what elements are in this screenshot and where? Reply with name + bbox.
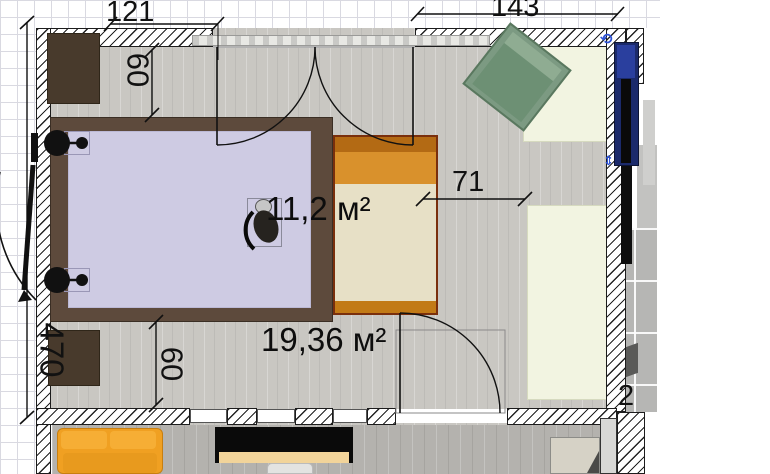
dim-label-121: 121 — [106, 0, 154, 27]
dim-label-60-top: 60 — [123, 53, 154, 87]
left-door-leaf[interactable] — [24, 165, 33, 290]
room-area-label-large: 19,36 м² — [261, 323, 386, 356]
dim-label-60-bottom: 60 — [157, 347, 188, 381]
room-area-label-small: 11,2 м² — [266, 192, 371, 225]
bed-lamp-top[interactable] — [44, 130, 70, 156]
figurine-arm-curve — [246, 212, 254, 249]
dim-label-143: 143 — [491, 0, 539, 22]
bottom-door-outline — [396, 330, 505, 413]
bed-lamp-knob-bottom — [76, 274, 88, 286]
dim-label-71: 71 — [452, 168, 484, 197]
bottom-door-swing-arc — [400, 313, 500, 413]
dim-label-partial-2: 2 — [618, 382, 634, 411]
bed-lamp-bottom[interactable] — [44, 267, 70, 293]
double-door-swing-arc-right — [315, 47, 413, 145]
dim-label-470: 470 — [36, 322, 69, 377]
bed-lamp-knob-top — [76, 137, 88, 149]
left-door-arrowhead — [18, 290, 32, 302]
floor-plan-canvas[interactable]: ⟲ ⇕ — [0, 0, 770, 474]
double-door-swing-arc-left — [217, 47, 315, 145]
plan-annotations — [0, 0, 770, 474]
